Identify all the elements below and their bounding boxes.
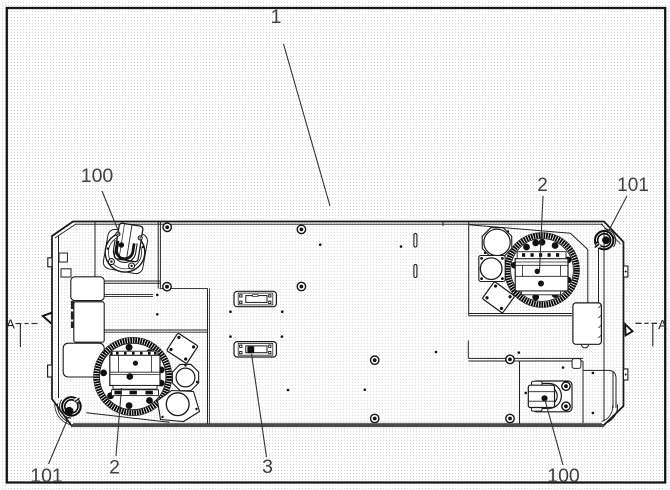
svg-text:2: 2: [109, 457, 120, 479]
svg-text:101: 101: [617, 175, 649, 196]
svg-text:A: A: [6, 317, 15, 332]
svg-text:3: 3: [262, 456, 273, 478]
svg-text:100: 100: [81, 165, 114, 187]
svg-text:2: 2: [537, 175, 548, 196]
svg-text:1: 1: [271, 6, 282, 28]
svg-text:101: 101: [30, 465, 63, 487]
svg-text:A: A: [658, 317, 667, 332]
svg-text:100: 100: [547, 465, 580, 487]
